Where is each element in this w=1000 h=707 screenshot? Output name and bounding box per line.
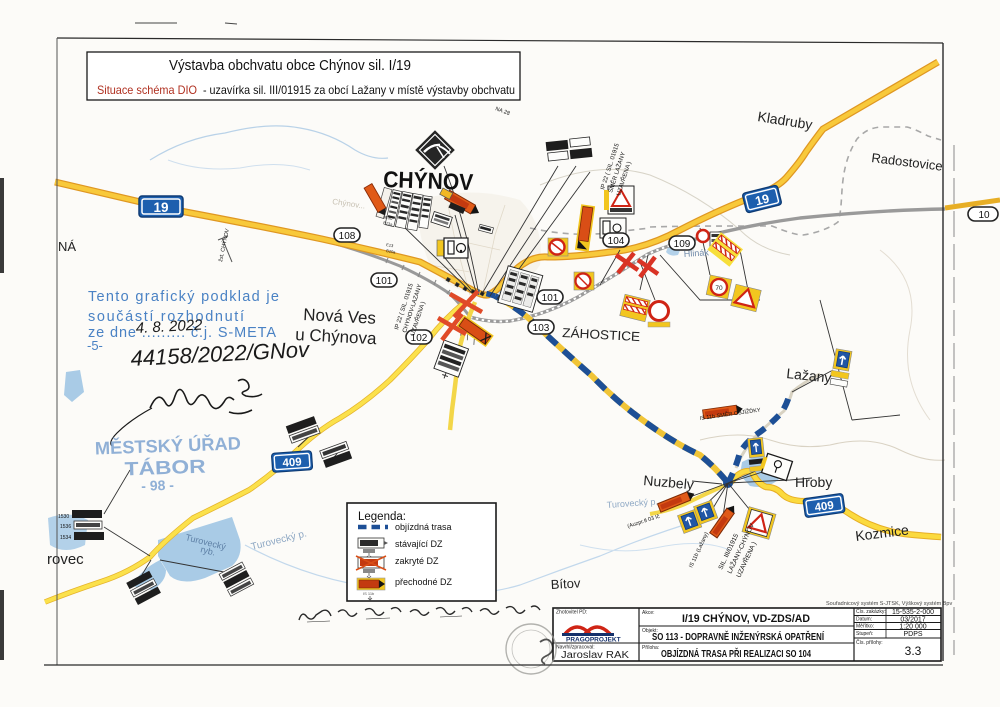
- svg-text:19: 19: [153, 200, 168, 215]
- svg-text:10: 10: [978, 210, 990, 221]
- svg-text:Čís. přílohy:: Čís. přílohy:: [856, 639, 883, 646]
- svg-text:70: 70: [715, 285, 723, 292]
- svg-text:zakryté DZ: zakryté DZ: [395, 556, 439, 566]
- svg-text:Stupeň:: Stupeň:: [856, 631, 873, 637]
- svg-text:OBJÍZDNÁ TRASA PŘI REALIZACI S: OBJÍZDNÁ TRASA PŘI REALIZACI SO 104: [661, 647, 811, 660]
- svg-text:- 98 -: - 98 -: [141, 477, 175, 494]
- svg-text:103: 103: [533, 323, 550, 334]
- svg-text:Datum:: Datum:: [856, 617, 872, 623]
- svg-text:CHÝNOV: CHÝNOV: [383, 165, 474, 195]
- svg-text:108: 108: [339, 231, 356, 242]
- svg-text:4. 8. 2022: 4. 8. 2022: [135, 316, 203, 337]
- svg-text:PDPS: PDPS: [903, 631, 922, 638]
- svg-text:Bítov: Bítov: [550, 575, 581, 592]
- svg-text:IS 11b: IS 11b: [363, 591, 375, 596]
- svg-text:PRAGOPROJEKT: PRAGOPROJEKT: [566, 637, 621, 644]
- svg-text:Situace schéma DIO: Situace schéma DIO: [97, 83, 197, 97]
- svg-text:I/19 CHÝNOV, VD-ZDS/AD: I/19 CHÝNOV, VD-ZDS/AD: [682, 612, 810, 625]
- svg-text:1:20 000: 1:20 000: [899, 624, 926, 631]
- svg-text:Zhotovitel PD:: Zhotovitel PD:: [556, 610, 587, 616]
- svg-text:Nová Ves: Nová Ves: [303, 305, 377, 328]
- svg-text:Hlinák: Hlinák: [683, 247, 709, 259]
- svg-text:1534: 1534: [60, 535, 71, 541]
- svg-text:- uzavírka sil. III/01915 za o: - uzavírka sil. III/01915 za obcí Lažany…: [203, 83, 515, 97]
- svg-text:Hroby: Hroby: [795, 474, 832, 490]
- svg-text:rovec: rovec: [47, 551, 84, 568]
- svg-text:Příloha:: Příloha:: [642, 645, 659, 651]
- svg-text:objízdná trasa: objízdná trasa: [395, 522, 452, 532]
- svg-text:stávající DZ: stávající DZ: [395, 539, 443, 549]
- svg-text:Výstavba obchvatu obce Chýnov: Výstavba obchvatu obce Chýnov sil. I/19: [169, 57, 411, 74]
- svg-text:NÁ: NÁ: [58, 239, 76, 254]
- svg-text:Jaroslav RAK: Jaroslav RAK: [561, 650, 629, 661]
- svg-text:104: 104: [608, 236, 625, 247]
- svg-text:Akce:: Akce:: [642, 610, 655, 616]
- svg-text:101: 101: [542, 293, 559, 304]
- svg-text:3.3: 3.3: [905, 644, 922, 658]
- svg-text:přechodné DZ: přechodné DZ: [395, 577, 453, 587]
- svg-text:1536: 1536: [60, 524, 71, 530]
- svg-text:-5-: -5-: [87, 338, 103, 353]
- svg-text:Tento grafický podklad je: Tento grafický podklad je: [88, 289, 279, 305]
- svg-text:Souřadnicový systém S-JTSK, Vý: Souřadnicový systém S-JTSK, Výškový syst…: [826, 601, 952, 607]
- svg-text:409: 409: [282, 456, 302, 469]
- svg-text:101: 101: [376, 276, 393, 287]
- svg-text:Měřítko:: Měřítko:: [856, 624, 874, 630]
- svg-text:SO 113 - DOPRAVNĚ INŽENÝRSKÁ O: SO 113 - DOPRAVNĚ INŽENÝRSKÁ OPATŘENÍ: [652, 630, 825, 643]
- svg-text:03/2017: 03/2017: [900, 617, 925, 624]
- svg-text:1530: 1530: [58, 514, 69, 520]
- svg-text:15-535-2-000: 15-535-2-000: [892, 609, 934, 616]
- svg-text:Čís. zakázky:: Čís. zakázky:: [856, 608, 886, 615]
